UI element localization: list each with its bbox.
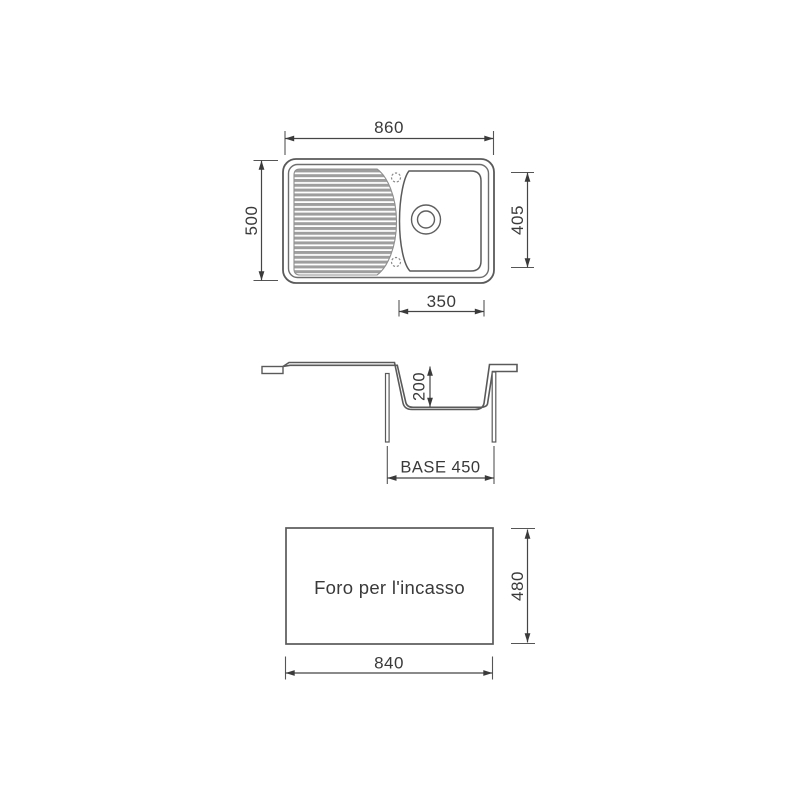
section-view: 200 BASE 450 — [262, 363, 517, 485]
dim-overall-depth: 500 — [242, 161, 278, 281]
dim-label-base-450: BASE 450 — [400, 459, 480, 477]
drain-inner-circle — [418, 211, 435, 228]
dim-label-480: 480 — [508, 571, 527, 601]
drainer-ribs — [294, 169, 397, 275]
dim-bowl-depth: 200 — [411, 367, 431, 408]
tap-hole-bottom — [392, 258, 401, 267]
dim-overall-width: 860 — [285, 118, 494, 155]
dim-bowl-length: 405 — [508, 173, 534, 268]
dim-label-200: 200 — [411, 372, 429, 401]
sink-technical-drawing: 860 500 405 350 — [0, 0, 800, 800]
cutout-view: Foro per l'incasso 840 480 — [286, 528, 536, 680]
page: 860 500 405 350 — [0, 0, 800, 800]
dim-label-840: 840 — [374, 654, 404, 673]
dim-bowl-width: 350 — [399, 292, 484, 317]
cutout-label: Foro per l'incasso — [314, 577, 465, 598]
dim-label-500: 500 — [242, 206, 261, 236]
section-profile — [283, 363, 517, 410]
tap-hole-top — [392, 173, 401, 182]
dim-base: BASE 450 — [387, 446, 494, 484]
mounting-leg-right — [492, 372, 496, 442]
dim-cutout-width: 840 — [286, 654, 493, 680]
rim-lip-left — [262, 367, 283, 374]
dim-cutout-height: 480 — [508, 529, 535, 644]
dim-label-405: 405 — [508, 205, 527, 235]
mounting-leg-left — [386, 374, 390, 443]
top-view: 860 500 405 350 — [242, 118, 534, 317]
dim-label-350: 350 — [427, 292, 457, 311]
dim-label-860: 860 — [374, 118, 404, 137]
